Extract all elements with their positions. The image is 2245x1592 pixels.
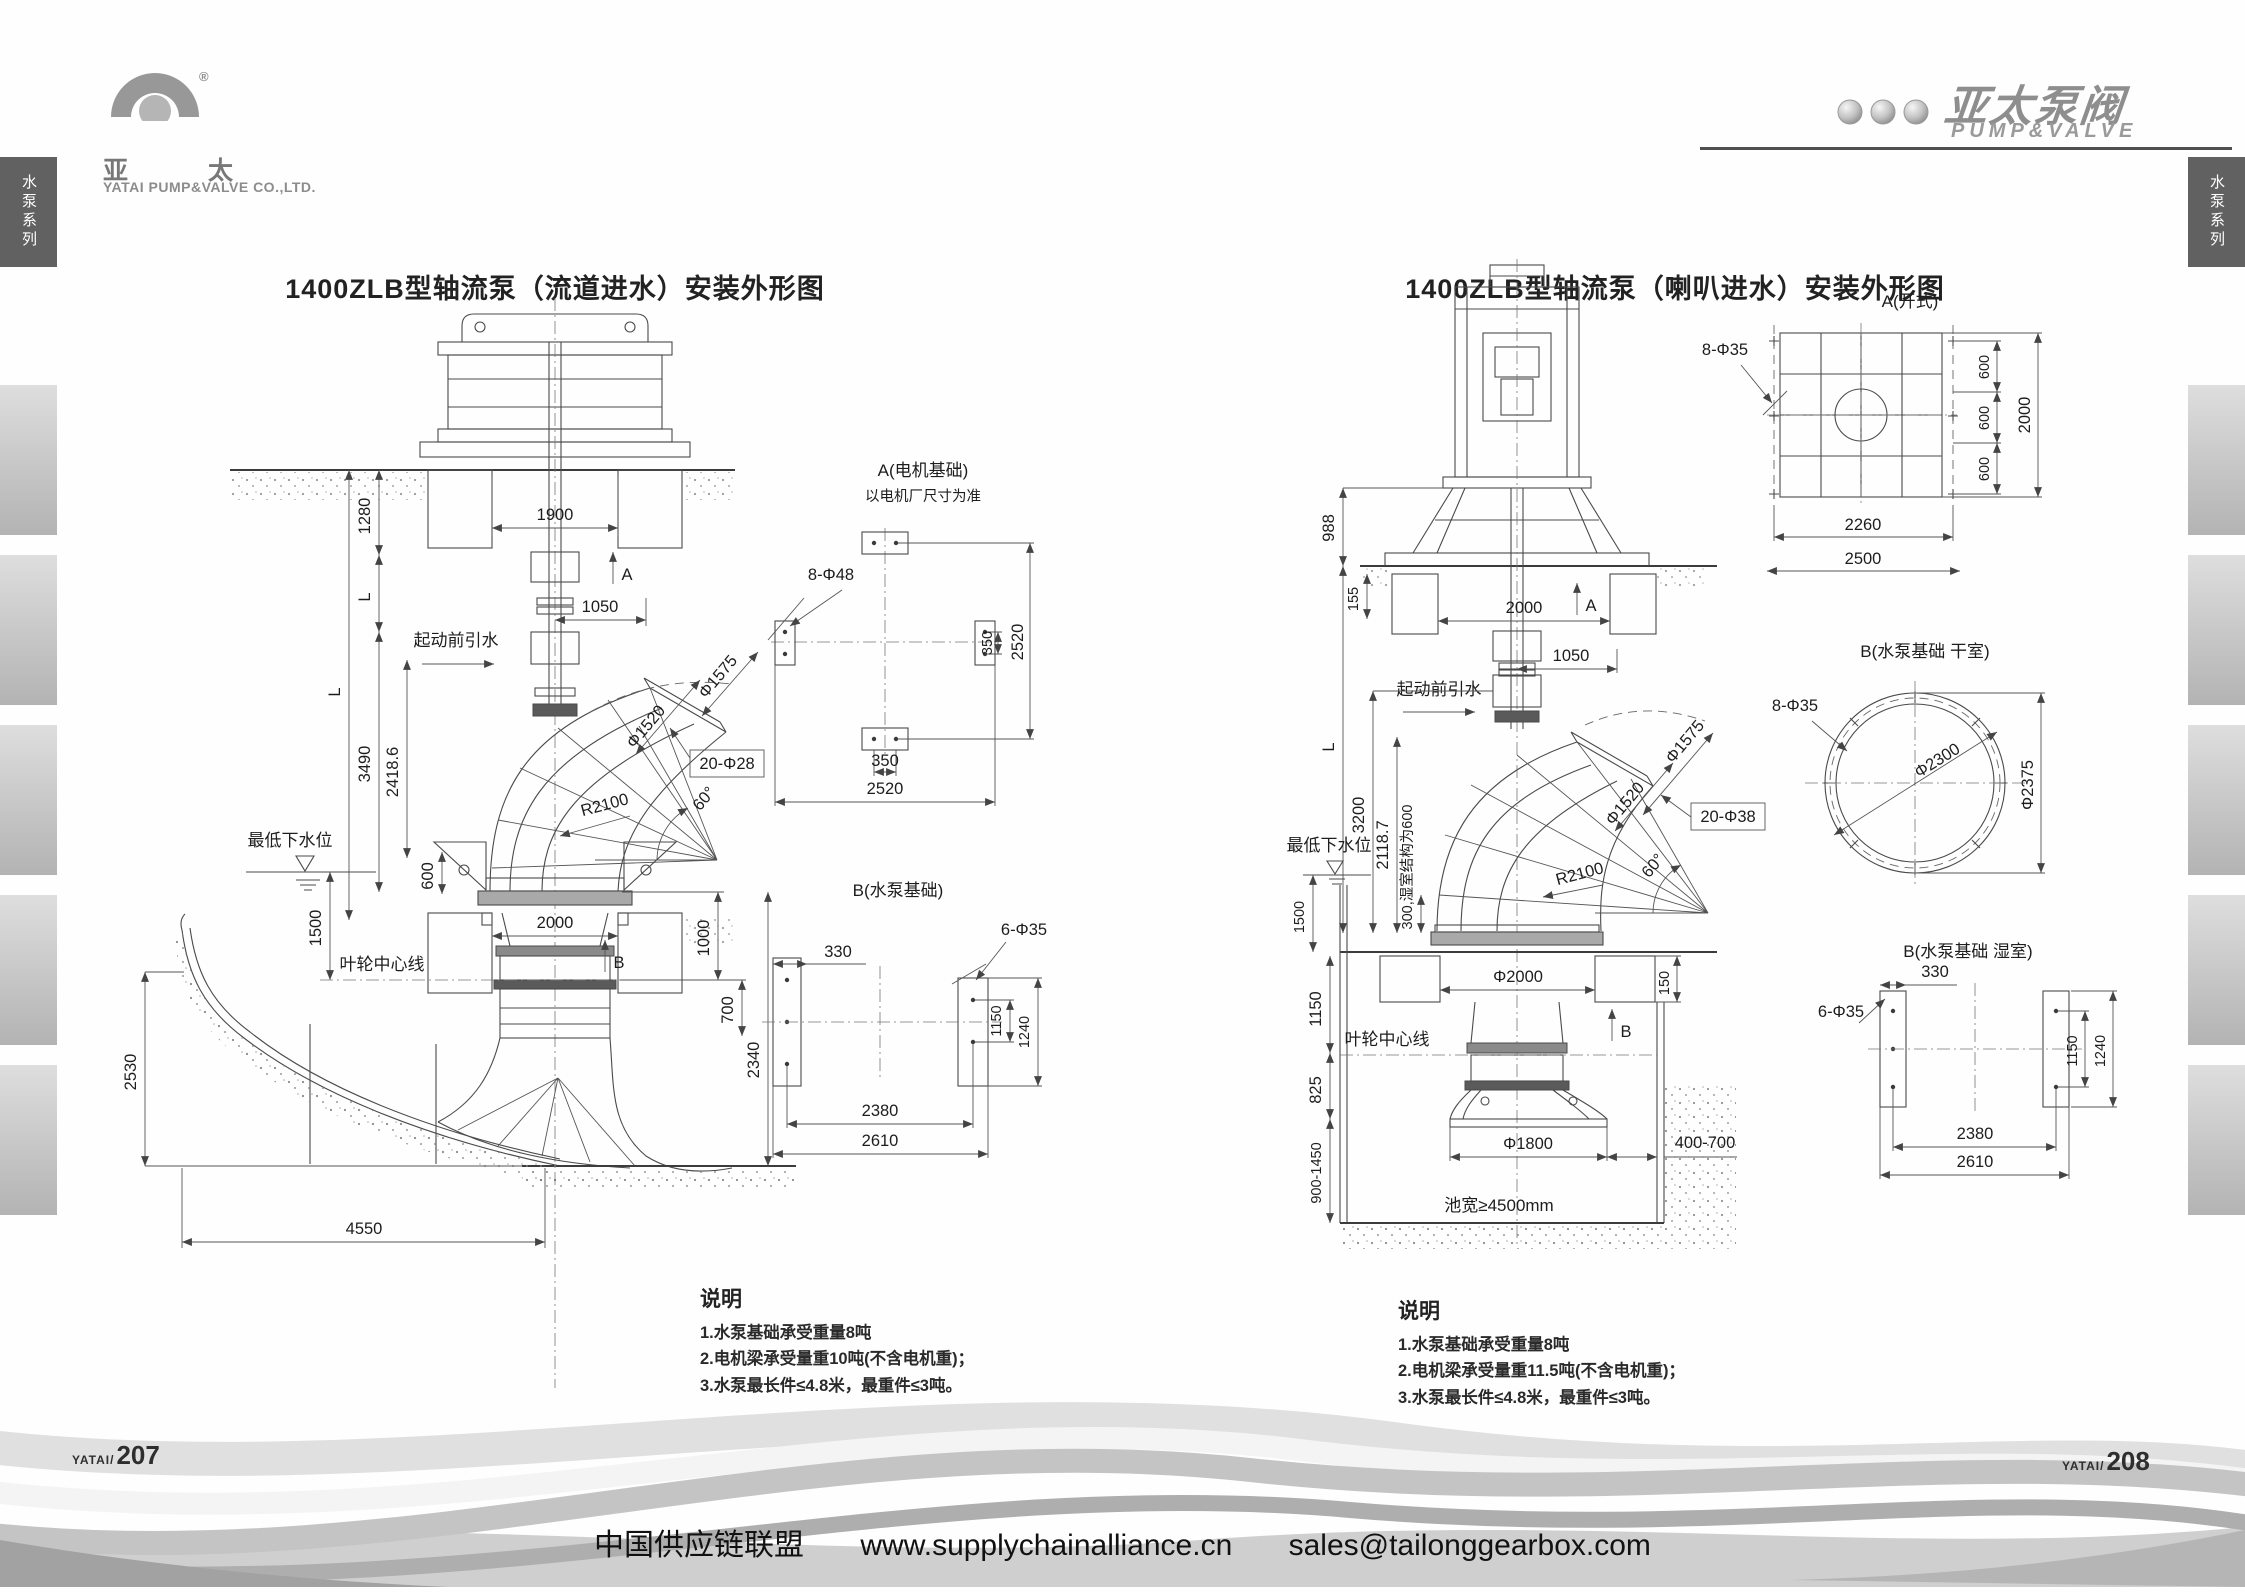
dim-1500: 1500 bbox=[307, 910, 325, 947]
figure-bell-inlet: 1400ZLB型轴流泵（喇叭进水）安装外形图 bbox=[1285, 245, 2190, 1420]
sub-b-title: B(水泵基础) bbox=[853, 881, 944, 900]
label-priming: 起动前引水 bbox=[414, 631, 499, 650]
dim-B: B bbox=[613, 954, 624, 972]
dim-2610: 2610 bbox=[862, 1132, 899, 1150]
label-pool-width: 池宽≥4500mm bbox=[1444, 1196, 1553, 1215]
dim-6-35: 6-Φ35 bbox=[1001, 921, 1047, 939]
dim-3200: 3200 bbox=[1350, 797, 1368, 834]
dim-350b: 350 bbox=[871, 752, 899, 770]
header-rule bbox=[1700, 147, 2232, 150]
series-tab-label: 水泵系列 bbox=[18, 174, 39, 250]
email-link[interactable]: sales@tailonggearbox.com bbox=[1289, 1529, 1651, 1562]
label-min-water-level: 最低下水位 bbox=[248, 831, 333, 850]
dim-1240: 1240 bbox=[1017, 1016, 1033, 1048]
dim-60deg: 60° bbox=[689, 783, 719, 814]
dim-phi1520: Φ1520 bbox=[623, 702, 669, 752]
dim-phi1575: Φ1575 bbox=[1662, 717, 1708, 767]
dim-L-total: L bbox=[326, 687, 344, 696]
figure-duct-inlet: 1400ZLB型轴流泵（流道进水）安装外形图 bbox=[90, 245, 1080, 1410]
sub-diagram-open-foundation: A(开式) 8-Φ35 600 600 600 2000 2260 2500 bbox=[1702, 292, 2042, 571]
dim-2000: 2000 bbox=[537, 914, 574, 932]
dim-2500: 2500 bbox=[1845, 550, 1882, 568]
dim-4550: 4550 bbox=[346, 1220, 383, 1238]
dim-330: 330 bbox=[824, 943, 852, 961]
website-link[interactable]: www.supplychainalliance.cn bbox=[860, 1529, 1232, 1562]
rail-block bbox=[0, 895, 57, 1045]
series-tab-label: 水泵系列 bbox=[2206, 174, 2227, 250]
dim-150: 150 bbox=[1657, 971, 1673, 995]
dim-B: B bbox=[1620, 1023, 1631, 1041]
page-num: 207 bbox=[116, 1440, 159, 1471]
page-num: 208 bbox=[2106, 1446, 2149, 1477]
dim-2380: 2380 bbox=[862, 1102, 899, 1120]
dim-900-1450: 900-1450 bbox=[1309, 1142, 1325, 1203]
registered-mark: ® bbox=[199, 69, 209, 84]
dim-8-35: 8-Φ35 bbox=[1772, 697, 1818, 715]
dim-600: 600 bbox=[1977, 406, 1993, 430]
arch-logo-icon bbox=[103, 61, 213, 121]
dim-bolts-20-38: 20-Φ38 bbox=[1700, 808, 1755, 826]
dim-phi1575: Φ1575 bbox=[695, 652, 741, 702]
dim-1050: 1050 bbox=[582, 598, 619, 616]
page-brand: YATAI/ bbox=[2062, 1459, 2104, 1473]
dim-phi2375: Φ2375 bbox=[2019, 760, 2037, 810]
rail-block bbox=[0, 555, 57, 705]
note-item: 1.水泵基础承受重量8吨 bbox=[1398, 1332, 1788, 1358]
dim-phi2300: Φ2300 bbox=[1911, 740, 1963, 782]
label-impeller-centerline: 叶轮中心线 bbox=[340, 955, 425, 974]
installation-drawing-duct-inlet: 1900 1050 A 起动前引水 L 1280 L 3490 2418.6 6… bbox=[90, 280, 1080, 1405]
three-spheres-icon bbox=[1835, 92, 1940, 137]
dim-phi2000: Φ2000 bbox=[1493, 968, 1543, 986]
dim-2340: 2340 bbox=[745, 1042, 763, 1079]
dim-300-wet: 300,湿室结构为600 bbox=[1399, 805, 1416, 930]
dim-1000: 1000 bbox=[695, 920, 713, 957]
sub-a-subtitle: 以电机厂尺寸为准 bbox=[865, 488, 981, 505]
yatai-logo: ® 亚 太 YATAI PUMP&VALVE CO.,LTD. bbox=[65, 45, 365, 165]
sub-diagram-wet-chamber: B(水泵基础 湿室) 330 6-Φ35 1150 1240 2380 2610 bbox=[1818, 942, 2117, 1179]
dim-600: 600 bbox=[1977, 457, 1993, 481]
dim-1150: 1150 bbox=[989, 1005, 1005, 1036]
dim-700: 700 bbox=[719, 996, 737, 1024]
rail-block bbox=[0, 385, 57, 535]
dim-6-35: 6-Φ35 bbox=[1818, 1003, 1864, 1021]
right-rail: 水泵系列 bbox=[2188, 0, 2245, 1587]
sub-diagram-motor-foundation: A(电机基础) 以电机厂尺寸为准 8-Φ48 350 2520 350 bbox=[768, 461, 1034, 806]
dim-155: 155 bbox=[1346, 587, 1362, 611]
dim-2000: 2000 bbox=[2016, 397, 2034, 434]
electric-motor bbox=[1360, 265, 1717, 634]
contact-row: 中国供应链联盟 www.supplychainalliance.cn sales… bbox=[0, 1520, 2245, 1564]
dim-8-48: 8-Φ48 bbox=[808, 566, 854, 584]
motor-support-assembly bbox=[230, 314, 735, 548]
sub-b1-title: B(水泵基础 干室) bbox=[1860, 642, 1989, 661]
logo-en-wordmark: PUMP&VALVE bbox=[1951, 120, 2137, 143]
dim-2520b: 2520 bbox=[867, 780, 904, 798]
dim-phi1800: Φ1800 bbox=[1503, 1135, 1553, 1153]
dim-L: L bbox=[1320, 742, 1338, 751]
dim-825: 825 bbox=[1307, 1076, 1325, 1104]
dim-2380: 2380 bbox=[1957, 1125, 1994, 1143]
label-impeller-centerline: 叶轮中心线 bbox=[1345, 1030, 1430, 1049]
dim-phi1520: Φ1520 bbox=[1602, 779, 1648, 829]
dimension-annotations: 1900 1050 A 起动前引水 L 1280 L 3490 2418.6 6… bbox=[122, 470, 768, 1248]
rail-block bbox=[2188, 385, 2245, 535]
dim-1150: 1150 bbox=[2065, 1035, 2081, 1066]
left-rail: 水泵系列 bbox=[0, 0, 57, 1587]
sub-b2-title: B(水泵基础 湿室) bbox=[1903, 942, 2032, 961]
discharge-elbow bbox=[434, 678, 732, 905]
rail-block bbox=[0, 725, 57, 875]
discharge-elbow bbox=[1431, 711, 1708, 945]
dim-bolts-20-28: 20-Φ28 bbox=[699, 755, 754, 773]
sub-a-title: A(开式) bbox=[1882, 292, 1939, 311]
dim-350: 350 bbox=[980, 631, 996, 655]
dim-2610: 2610 bbox=[1957, 1153, 1994, 1171]
notes-title: 说明 bbox=[700, 1283, 1090, 1313]
rail-block bbox=[2188, 895, 2245, 1045]
dim-400-700: 400-700 bbox=[1675, 1134, 1736, 1152]
label-min-water-level: 最低下水位 bbox=[1287, 836, 1372, 855]
dim-3490: 3490 bbox=[356, 746, 374, 783]
dim-1240: 1240 bbox=[2093, 1035, 2109, 1067]
note-item: 2.电机梁承受量重10吨(不含电机重)； bbox=[700, 1346, 1090, 1372]
dim-A: A bbox=[1585, 597, 1596, 615]
dim-1900: 1900 bbox=[537, 506, 574, 524]
dim-A: A bbox=[621, 566, 632, 584]
notes-title: 说明 bbox=[1398, 1295, 1788, 1325]
installation-drawing-bell-inlet: 988 155 2000 A 1050 起动前引水 L 3200 2118.7 … bbox=[1285, 245, 2190, 1420]
sub-a-title: A(电机基础) bbox=[878, 461, 969, 480]
dim-2118: 2118.7 bbox=[1374, 820, 1392, 869]
dim-R2100: R2100 bbox=[1554, 859, 1606, 889]
org-name: 中国供应链联盟 bbox=[594, 1529, 804, 1562]
dim-330: 330 bbox=[1921, 963, 1949, 981]
dim-600: 600 bbox=[1977, 355, 1993, 379]
pumpvalve-logo: 亚太泵阀 PUMP&VALVE bbox=[1835, 70, 2235, 155]
label-priming: 起动前引水 bbox=[1397, 680, 1482, 699]
dim-2000-top: 2000 bbox=[1506, 599, 1543, 617]
dim-1500: 1500 bbox=[1292, 901, 1308, 933]
dim-2530: 2530 bbox=[122, 1054, 140, 1091]
page-number-left: YATAI/ 207 bbox=[72, 1440, 160, 1471]
dim-1280: 1280 bbox=[356, 498, 374, 535]
dim-L: L bbox=[356, 592, 374, 601]
pump-shaft bbox=[1493, 259, 1541, 1247]
note-item: 2.电机梁承受量重11.5吨(不含电机重)； bbox=[1398, 1358, 1788, 1384]
dim-1050: 1050 bbox=[1553, 647, 1590, 665]
dim-988: 988 bbox=[1320, 514, 1338, 542]
dim-8-35: 8-Φ35 bbox=[1702, 341, 1748, 359]
rail-block bbox=[2188, 725, 2245, 875]
rail-block bbox=[2188, 1065, 2245, 1215]
note-item: 1.水泵基础承受重量8吨 bbox=[700, 1320, 1090, 1346]
rail-block bbox=[2188, 555, 2245, 705]
pump-column bbox=[428, 913, 732, 1171]
sub-diagram-pump-foundation: B(水泵基础) 330 6-Φ35 1150 1240 2380 2610 bbox=[762, 881, 1047, 1158]
series-tab-left: 水泵系列 bbox=[0, 157, 57, 267]
sub-diagram-dry-chamber: B(水泵基础 干室) 8-Φ35 Φ2300 Φ2375 bbox=[1772, 642, 2045, 885]
dim-2418: 2418.6 bbox=[384, 747, 402, 797]
rail-block bbox=[0, 1065, 57, 1215]
company-name: YATAI PUMP&VALVE CO.,LTD. bbox=[103, 179, 316, 195]
dim-600: 600 bbox=[419, 862, 437, 890]
dim-2260: 2260 bbox=[1845, 516, 1882, 534]
page-brand: YATAI/ bbox=[72, 1453, 114, 1467]
dim-2520: 2520 bbox=[1009, 624, 1027, 661]
dim-1150: 1150 bbox=[1307, 991, 1325, 1026]
series-tab-right: 水泵系列 bbox=[2188, 157, 2245, 267]
page-number-right: YATAI/ 208 bbox=[2062, 1446, 2150, 1477]
pump-shaft bbox=[531, 298, 579, 1388]
